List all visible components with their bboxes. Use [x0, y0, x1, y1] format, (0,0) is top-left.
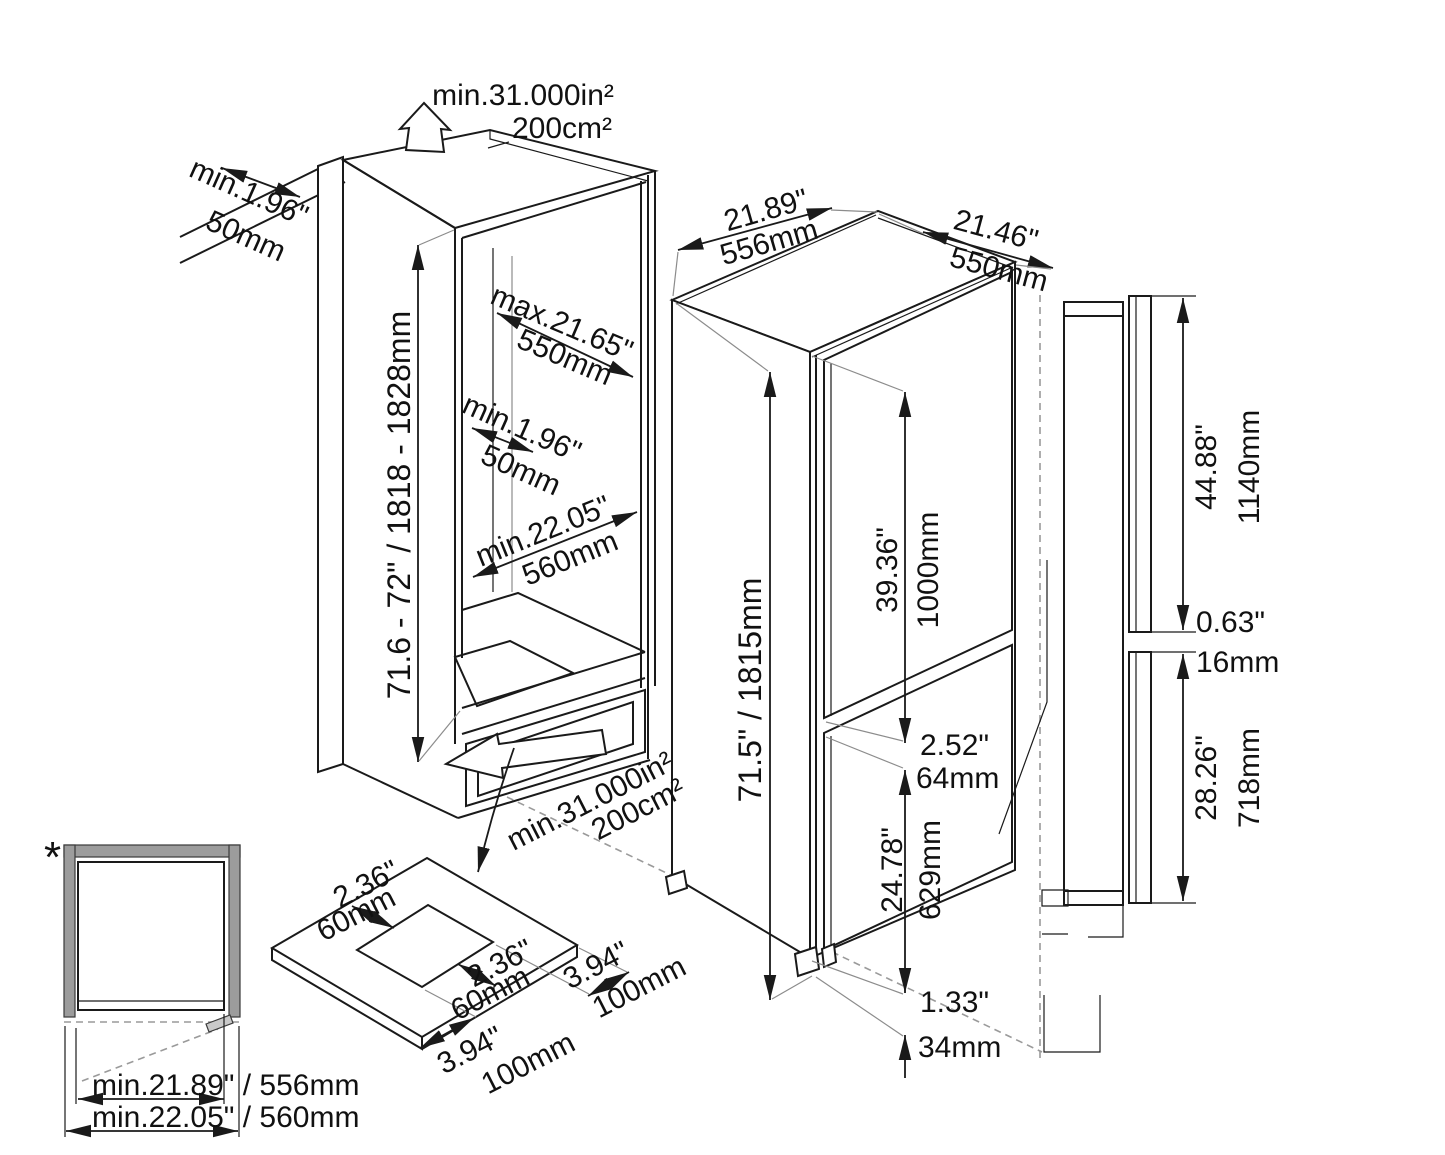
side-view-door-panels	[1040, 295, 1196, 1062]
niche-floor-vent-cutout	[455, 641, 573, 706]
label-upper-door-in: 39.36"	[871, 527, 904, 613]
label-panel-lower-in: 28.26"	[1190, 735, 1223, 821]
door-open-detail	[206, 1015, 233, 1032]
base-vent-plate-view	[272, 858, 627, 1049]
label-asterisk-marker: *	[44, 833, 61, 882]
label-panel-lower-mm: 718mm	[1233, 728, 1266, 828]
lower-panel-profile	[1129, 652, 1151, 903]
label-lower-door-mm: 629mm	[914, 820, 947, 920]
upper-panel-profile	[1129, 296, 1151, 632]
fridge-foot-front2	[822, 944, 836, 967]
refrigerator-installation-diagram: min.31.000in² 200cm² min.1.96" 50mm 71.6…	[0, 0, 1445, 1155]
label-top-vent-area-cm: 200cm²	[512, 112, 612, 145]
fridge-profile	[1064, 302, 1123, 905]
label-fridge-height: 71.5" / 1815mm	[732, 578, 768, 803]
airflow-arrows	[400, 103, 606, 872]
label-plan-width-inner: min.21.89" / 556mm	[92, 1069, 359, 1102]
fridge-isometric-view	[666, 211, 1015, 976]
label-foot-mm: 34mm	[918, 1031, 1001, 1064]
label-foot-in: 1.33"	[920, 986, 989, 1019]
label-panel-gap-mm: 16mm	[1196, 646, 1279, 679]
label-niche-height: 71.6 - 72" / 1818 - 1828mm	[381, 311, 417, 699]
label-door-gap-in: 2.52"	[920, 729, 989, 762]
label-plan-width-outer: min.22.05" / 560mm	[92, 1101, 359, 1134]
label-top-vent-area-in: min.31.000in²	[432, 79, 614, 112]
label-panel-upper-in: 44.88"	[1190, 424, 1223, 510]
label-panel-gap-in: 0.63"	[1196, 606, 1265, 639]
label-lower-door-in: 24.78"	[876, 827, 909, 913]
label-door-gap-mm: 64mm	[916, 762, 999, 795]
fridge-foot-back	[666, 871, 687, 894]
label-panel-upper-mm: 1140mm	[1233, 410, 1266, 525]
label-upper-door-mm: 1000mm	[912, 512, 945, 629]
installation-diagram-page: min.31.000in² 200cm² min.1.96" 50mm 71.6…	[0, 0, 1445, 1155]
